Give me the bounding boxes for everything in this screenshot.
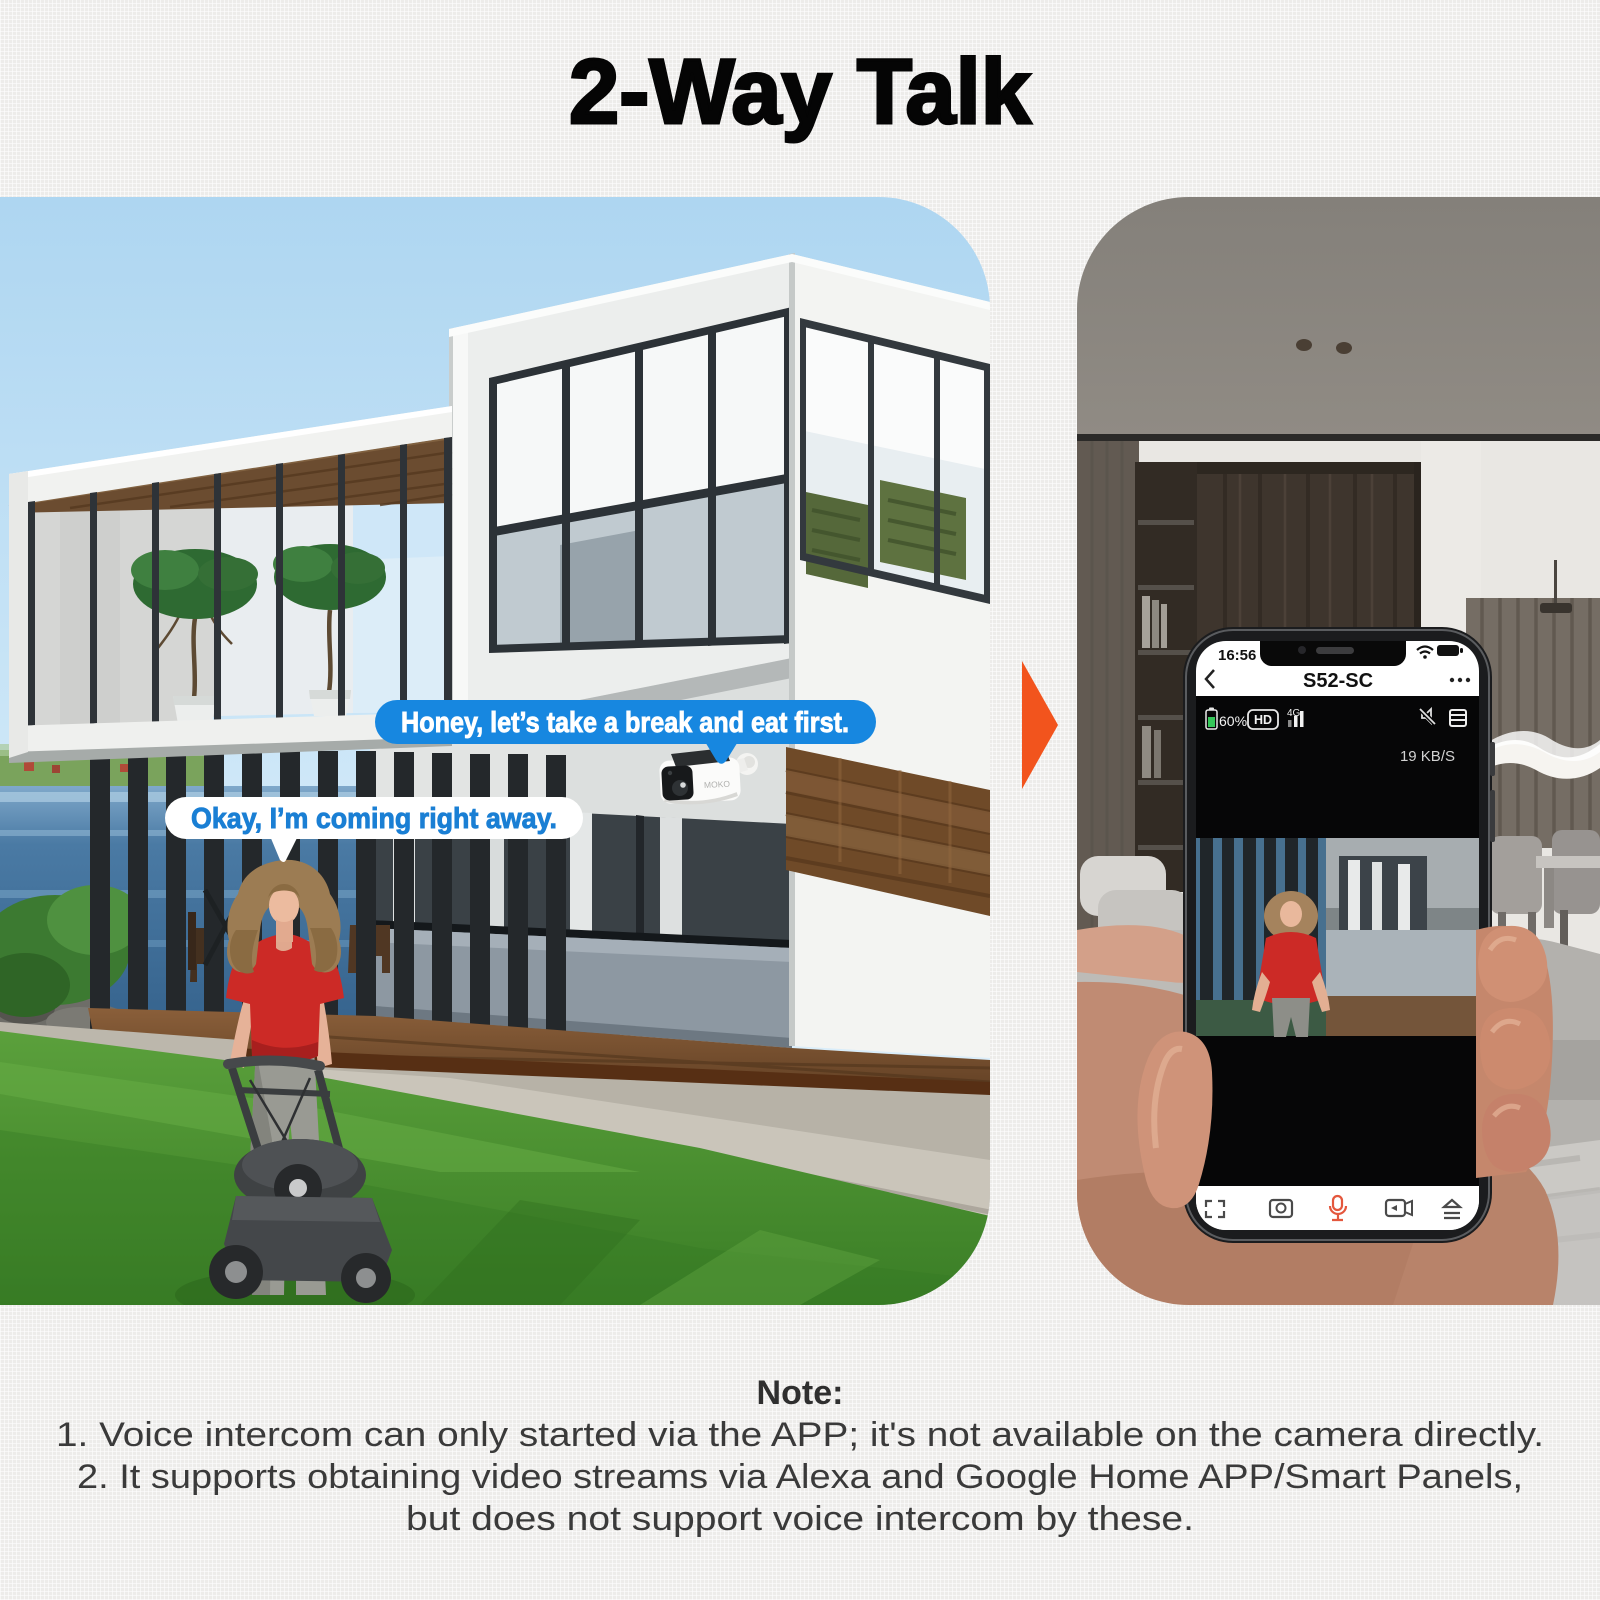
svg-text:4G: 4G [1287, 708, 1301, 719]
svg-text:MOKO: MOKO [704, 779, 731, 790]
svg-text:2. It supports obtaining video: 2. It supports obtaining video streams v… [77, 1458, 1523, 1496]
svg-text:Honey, let’s take a break and: Honey, let’s take a break and eat first. [401, 707, 849, 739]
svg-text:S52-SC: S52-SC [1303, 670, 1373, 692]
svg-text:60%: 60% [1219, 713, 1247, 729]
svg-text:19 KB/S: 19 KB/S [1400, 748, 1455, 765]
svg-text:but does not support voice int: but does not support voice intercom by t… [406, 1500, 1194, 1538]
svg-text:Okay, I’m coming right away.: Okay, I’m coming right away. [191, 803, 557, 835]
svg-text:1. Voice intercom can only sta: 1. Voice intercom can only started via t… [56, 1416, 1544, 1454]
svg-text:2-Way Talk: 2-Way Talk [569, 41, 1032, 143]
svg-text:HD: HD [1254, 713, 1272, 727]
svg-text:16:56: 16:56 [1218, 647, 1256, 664]
svg-text:Note:: Note: [757, 1374, 844, 1412]
